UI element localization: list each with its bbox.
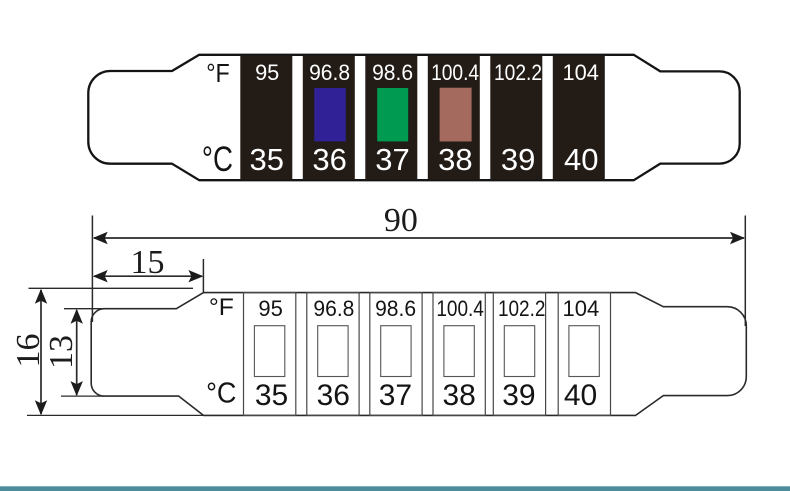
svg-text:°F: °F bbox=[206, 58, 230, 88]
svg-text:102.2: 102.2 bbox=[498, 296, 546, 321]
svg-text:39: 39 bbox=[501, 142, 535, 177]
svg-text:104: 104 bbox=[563, 60, 599, 85]
svg-text:96.8: 96.8 bbox=[309, 60, 350, 85]
svg-text:13: 13 bbox=[43, 335, 80, 369]
svg-text:40: 40 bbox=[564, 142, 598, 177]
svg-text:38: 38 bbox=[443, 379, 476, 412]
svg-text:37: 37 bbox=[375, 142, 409, 177]
svg-text:95: 95 bbox=[255, 60, 279, 85]
svg-text:39: 39 bbox=[502, 379, 535, 412]
svg-text:104: 104 bbox=[563, 296, 600, 321]
svg-text:102.2: 102.2 bbox=[494, 60, 542, 85]
svg-text:98.6: 98.6 bbox=[375, 296, 416, 321]
svg-text:36: 36 bbox=[312, 142, 346, 177]
svg-text:35: 35 bbox=[255, 379, 288, 412]
svg-text:°C: °C bbox=[202, 140, 233, 179]
svg-text:96.8: 96.8 bbox=[313, 296, 354, 321]
svg-text:40: 40 bbox=[564, 379, 597, 412]
svg-text:16: 16 bbox=[10, 334, 47, 368]
svg-text:15: 15 bbox=[131, 244, 165, 281]
svg-text:90: 90 bbox=[384, 202, 418, 239]
svg-text:36: 36 bbox=[317, 379, 350, 412]
svg-text:98.6: 98.6 bbox=[372, 60, 413, 85]
svg-text:°F: °F bbox=[209, 295, 234, 321]
svg-text:100.4: 100.4 bbox=[436, 296, 484, 321]
svg-text:37: 37 bbox=[379, 379, 412, 412]
svg-text:35: 35 bbox=[249, 142, 283, 177]
svg-text:38: 38 bbox=[438, 142, 472, 177]
svg-text:95: 95 bbox=[258, 296, 282, 321]
svg-text:°C: °C bbox=[206, 377, 236, 409]
svg-text:100.4: 100.4 bbox=[431, 60, 479, 85]
